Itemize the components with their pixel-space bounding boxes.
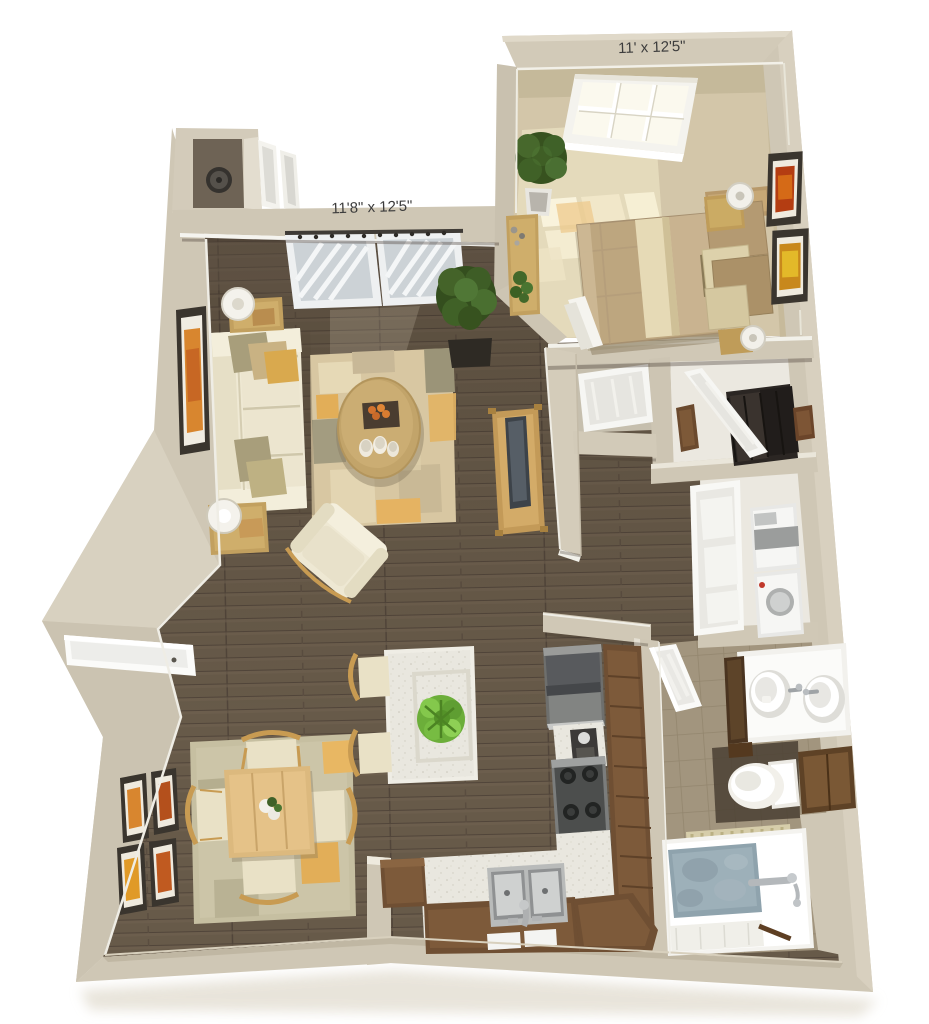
svg-text:11' x 12'5": 11' x 12'5" [618,38,686,57]
svg-text:11'8" x 12'5": 11'8" x 12'5" [331,198,413,218]
